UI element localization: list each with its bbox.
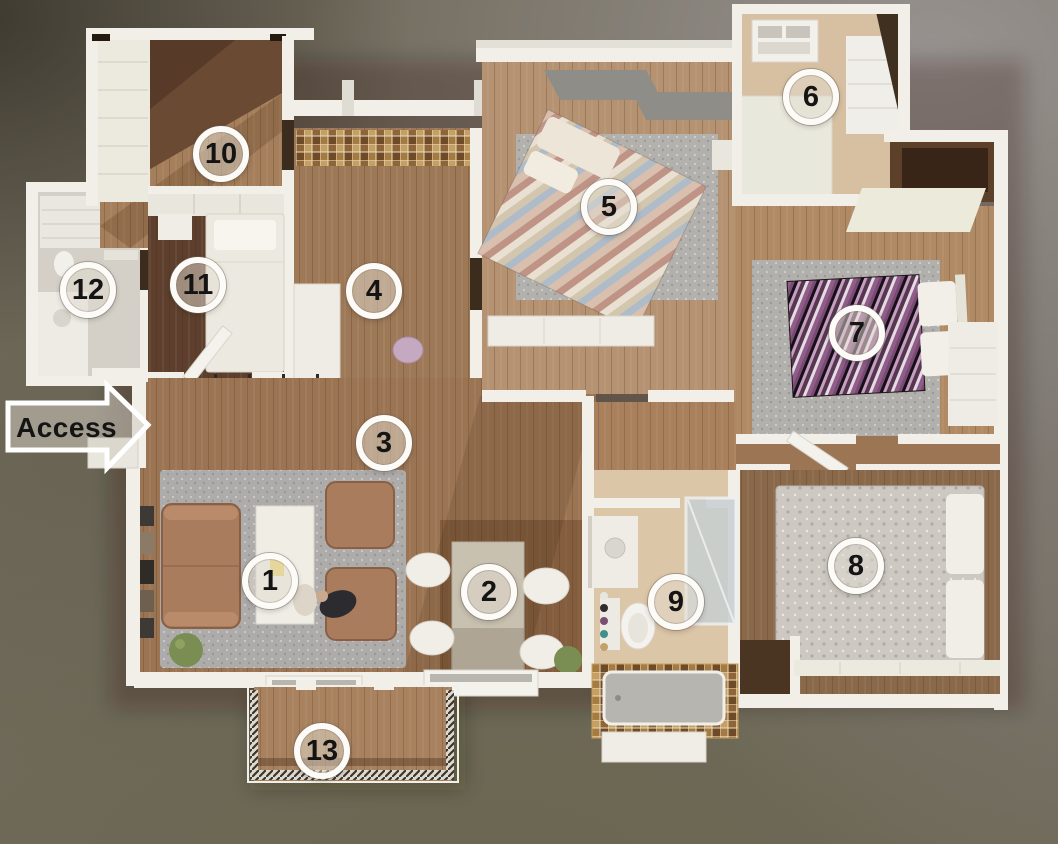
room-marker-9: 9: [648, 574, 704, 630]
room-marker-2: 2: [461, 564, 517, 620]
room-marker-1: 1: [242, 553, 298, 609]
marker-layer: 12345678910111213: [0, 0, 1058, 844]
room-marker-8: 8: [828, 538, 884, 594]
room-marker-10: 10: [193, 126, 249, 182]
room-marker-13: 13: [294, 723, 350, 779]
room-marker-5: 5: [581, 179, 637, 235]
floor-plan-screenshot: Access 12345678910111213: [0, 0, 1058, 844]
room-marker-12: 12: [60, 262, 116, 318]
room-marker-4: 4: [346, 263, 402, 319]
room-marker-6: 6: [783, 69, 839, 125]
room-marker-3: 3: [356, 415, 412, 471]
room-marker-11: 11: [170, 257, 226, 313]
room-marker-7: 7: [829, 305, 885, 361]
